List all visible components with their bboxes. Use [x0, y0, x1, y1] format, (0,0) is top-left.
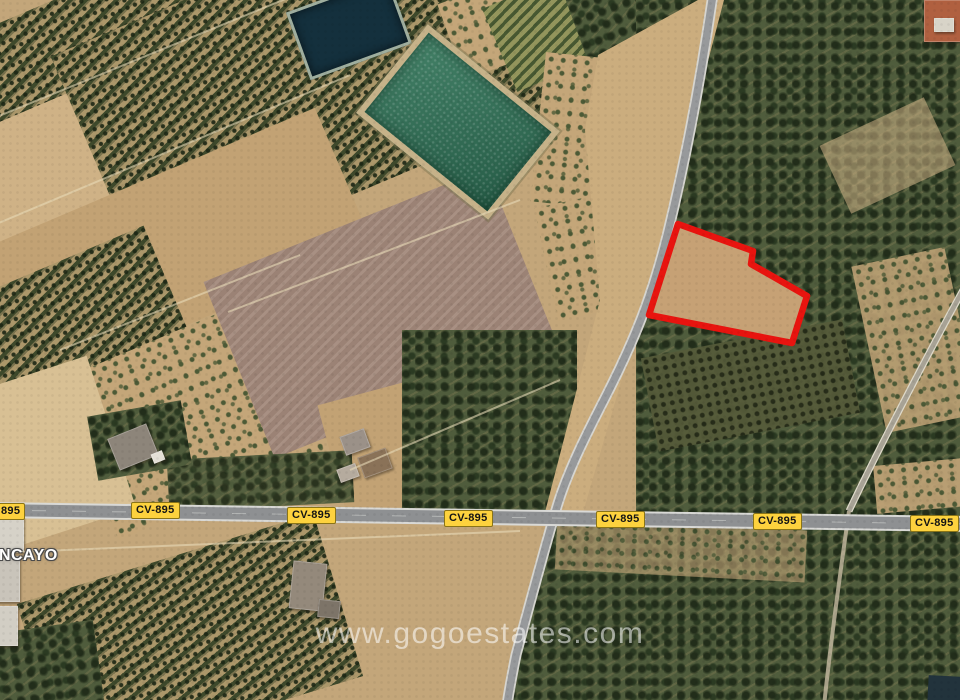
field-tracks [0, 0, 560, 553]
road-badge: CV-895 [444, 510, 493, 527]
place-label-line1: ONCAYO [0, 547, 58, 564]
dirt-road-south [824, 511, 849, 700]
place-label-line2: A [0, 564, 58, 581]
road-badge: CV-895 [596, 511, 645, 528]
roads-and-parcel-overlay [0, 0, 960, 700]
place-label: ONCAYO A [0, 547, 58, 581]
road-badge: CV-895 [131, 502, 180, 519]
road-badge: CV-895 [753, 513, 802, 530]
secondary-road-casing [507, 0, 713, 700]
satellite-map-canvas[interactable]: 895 CV-895 CV-895 CV-895 CV-895 CV-895 C… [0, 0, 960, 700]
road-badge: 895 [0, 503, 25, 520]
secondary-road [507, 0, 713, 700]
parcel-outline [649, 224, 807, 343]
watermark: www.gogoestates.com [0, 617, 960, 651]
dirt-road-northeast [849, 290, 960, 511]
road-badge: CV-895 [910, 515, 959, 532]
road-badge: CV-895 [287, 507, 336, 524]
